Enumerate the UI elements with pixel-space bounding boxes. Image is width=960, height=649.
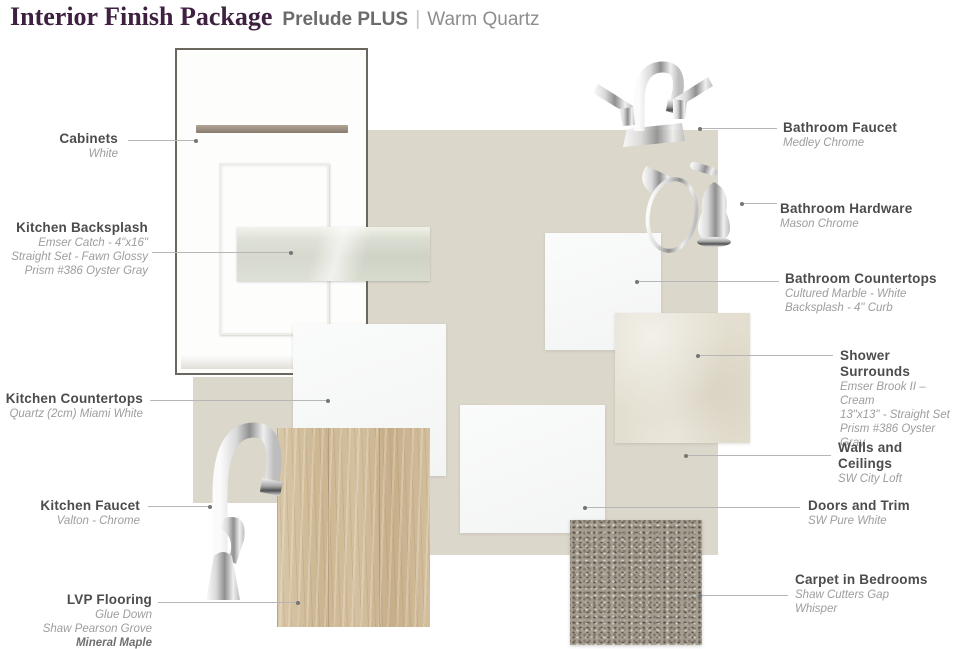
- leader-dot: [296, 601, 300, 605]
- leader-shower-surrounds: [698, 355, 833, 356]
- label-title: Bathroom Hardware: [780, 201, 912, 217]
- lvp-flooring-swatch: [277, 428, 430, 627]
- bathroom-faucet-image: [585, 57, 725, 152]
- label-detail: Prism #386 Oyster Gray: [11, 264, 148, 278]
- label-kitchen-faucet: Kitchen Faucet Valton - Chrome: [40, 498, 140, 528]
- label-cabinets: Cabinets White: [59, 131, 118, 161]
- label-kitchen-countertops: Kitchen Countertops Quartz (2cm) Miami W…: [6, 391, 143, 421]
- label-title: LVP Flooring: [43, 592, 152, 608]
- kitchen-backsplash-tile-swatch: [237, 227, 430, 281]
- leader-dot: [583, 506, 587, 510]
- label-title: Kitchen Faucet: [40, 498, 140, 514]
- label-shower-surrounds: Shower Surrounds Emser Brook II – Cream …: [840, 348, 960, 450]
- label-title: Cabinets: [59, 131, 118, 147]
- label-carpet-bedrooms: Carpet in Bedrooms Shaw Cutters Gap Whis…: [795, 572, 928, 616]
- label-detail: Quartz (2cm) Miami White: [6, 407, 143, 421]
- label-detail: Shaw Pearson Grove: [43, 622, 152, 636]
- label-lvp-flooring: LVP Flooring Glue Down Shaw Pearson Grov…: [43, 592, 152, 649]
- leader-carpet: [700, 595, 788, 596]
- leader-bathroom-countertops: [637, 281, 779, 282]
- finish-package-board: Interior Finish PackagePrelude PLUS|Warm…: [0, 0, 960, 649]
- label-title: Walls and Ceilings: [838, 440, 960, 472]
- label-title: Bathroom Countertops: [785, 271, 937, 287]
- label-title: Doors and Trim: [808, 498, 910, 514]
- label-kitchen-backsplash: Kitchen Backsplash Emser Catch - 4"x16" …: [11, 220, 148, 278]
- leader-dot: [289, 251, 293, 255]
- page-title: Interior Finish PackagePrelude PLUS|Warm…: [10, 2, 540, 32]
- label-walls-ceilings: Walls and Ceilings SW City Loft: [838, 440, 960, 486]
- kitchen-faucet-image: [162, 400, 292, 605]
- label-detail: Emser Brook II – Cream: [840, 380, 960, 408]
- label-detail: White: [59, 147, 118, 161]
- carpet-swatch: [570, 520, 702, 645]
- label-title: Carpet in Bedrooms: [795, 572, 928, 588]
- leader-bathroom-faucet: [700, 128, 777, 129]
- leader-dot: [696, 354, 700, 358]
- title-variant-name: Warm Quartz: [427, 9, 539, 30]
- label-title: Bathroom Faucet: [783, 120, 897, 136]
- label-detail: Mason Chrome: [780, 217, 912, 231]
- leader-lvp-flooring: [158, 602, 298, 603]
- label-detail: Straight Set - Fawn Glossy: [11, 250, 148, 264]
- bathroom-hardware-image: [628, 158, 748, 253]
- label-detail: Medley Chrome: [783, 136, 897, 150]
- leader-dot: [698, 127, 702, 131]
- leader-dot: [684, 454, 688, 458]
- leader-dot: [740, 202, 744, 206]
- leader-kitchen-backsplash: [152, 252, 291, 253]
- title-separator: |: [415, 8, 420, 30]
- label-title: Kitchen Backsplash: [11, 220, 148, 236]
- label-detail: Mineral Maple: [43, 636, 152, 649]
- leader-cabinets: [128, 140, 196, 141]
- label-detail: Glue Down: [43, 608, 152, 622]
- shower-surround-tile-swatch: [615, 313, 750, 443]
- label-doors-trim: Doors and Trim SW Pure White: [808, 498, 910, 528]
- leader-walls-ceilings: [686, 455, 831, 456]
- label-bathroom-hardware: Bathroom Hardware Mason Chrome: [780, 201, 912, 231]
- label-detail: Emser Catch - 4"x16": [11, 236, 148, 250]
- title-main: Interior Finish Package: [10, 2, 272, 31]
- label-detail: Shaw Cutters Gap: [795, 588, 928, 602]
- leader-dot: [208, 505, 212, 509]
- leader-dot: [635, 280, 639, 284]
- title-package-name: Prelude PLUS: [282, 9, 408, 30]
- label-detail: Valton - Chrome: [40, 514, 140, 528]
- cabinet-handle: [196, 125, 348, 133]
- label-detail: Backsplash - 4" Curb: [785, 301, 937, 315]
- label-detail: SW City Loft: [838, 472, 960, 486]
- label-detail: Whisper: [795, 602, 928, 616]
- leader-dot: [326, 399, 330, 403]
- leader-kitchen-faucet: [148, 506, 210, 507]
- label-detail: Cultured Marble - White: [785, 287, 937, 301]
- label-title: Kitchen Countertops: [6, 391, 143, 407]
- leader-doors-trim: [585, 507, 800, 508]
- label-bathroom-countertops: Bathroom Countertops Cultured Marble - W…: [785, 271, 937, 315]
- label-bathroom-faucet: Bathroom Faucet Medley Chrome: [783, 120, 897, 150]
- leader-kitchen-countertops: [150, 400, 328, 401]
- leader-dot: [698, 594, 702, 598]
- label-detail: 13"x13" - Straight Set: [840, 408, 960, 422]
- label-detail: SW Pure White: [808, 514, 910, 528]
- label-title: Shower Surrounds: [840, 348, 960, 380]
- leader-dot: [194, 139, 198, 143]
- leader-bathroom-hardware: [742, 203, 777, 204]
- doors-and-trim-swatch: [460, 405, 605, 533]
